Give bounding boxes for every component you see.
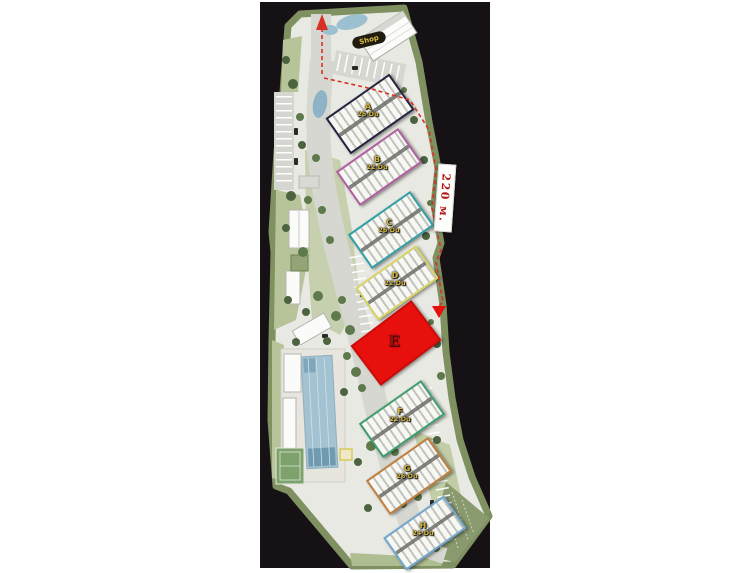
site-plan-canvas: A 25 Du B 22 Du C 26 Du D 22 Du E F 22 D…	[0, 0, 750, 573]
dimension-text: 220 м.	[437, 173, 453, 223]
